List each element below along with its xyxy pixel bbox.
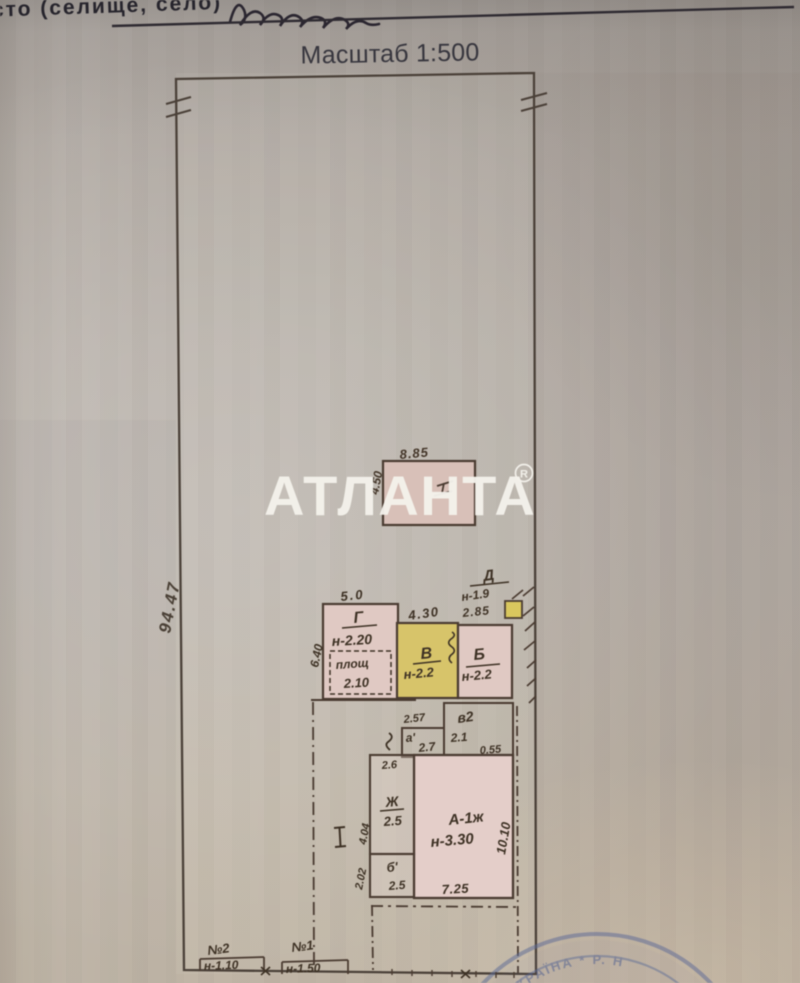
svg-text:2.7: 2.7 bbox=[417, 739, 437, 755]
svg-text:Ж: Ж bbox=[384, 793, 400, 810]
svg-text:н-1.10: н-1.10 bbox=[204, 958, 239, 973]
svg-text:АТЛАНТА: АТЛАНТА bbox=[264, 464, 536, 527]
svg-text:8.85: 8.85 bbox=[399, 444, 430, 461]
svg-text:Масштаб 1:500: Масштаб 1:500 bbox=[300, 38, 480, 69]
svg-text:2.5: 2.5 bbox=[382, 813, 403, 829]
svg-text:в2: в2 bbox=[456, 708, 475, 726]
svg-text:2.85: 2.85 bbox=[461, 603, 491, 620]
svg-text:сто (селище, село): сто (селище, село) bbox=[0, 0, 222, 22]
svg-text:площ: площ bbox=[335, 656, 369, 672]
svg-text:R: R bbox=[520, 469, 528, 481]
svg-text:7.25: 7.25 bbox=[441, 881, 469, 897]
svg-text:н-2.2: н-2.2 bbox=[403, 664, 435, 682]
svg-text:2.1: 2.1 bbox=[449, 730, 468, 745]
svg-text:5.0: 5.0 bbox=[340, 587, 366, 604]
svg-text:Б: Б bbox=[473, 646, 486, 664]
svg-text:№1: №1 bbox=[291, 937, 315, 955]
svg-text:В: В bbox=[420, 645, 433, 663]
svg-text:н-2.2: н-2.2 bbox=[461, 666, 493, 684]
svg-text:2.6: 2.6 bbox=[380, 759, 398, 772]
svg-text:2.10: 2.10 bbox=[342, 675, 370, 691]
svg-text:н-2.20: н-2.20 bbox=[331, 631, 372, 649]
svg-text:н-1.50: н-1.50 bbox=[286, 961, 321, 976]
svg-text:№2: №2 bbox=[207, 940, 232, 958]
svg-text:2.57: 2.57 bbox=[402, 712, 426, 726]
svg-text:2.5: 2.5 bbox=[387, 878, 406, 893]
